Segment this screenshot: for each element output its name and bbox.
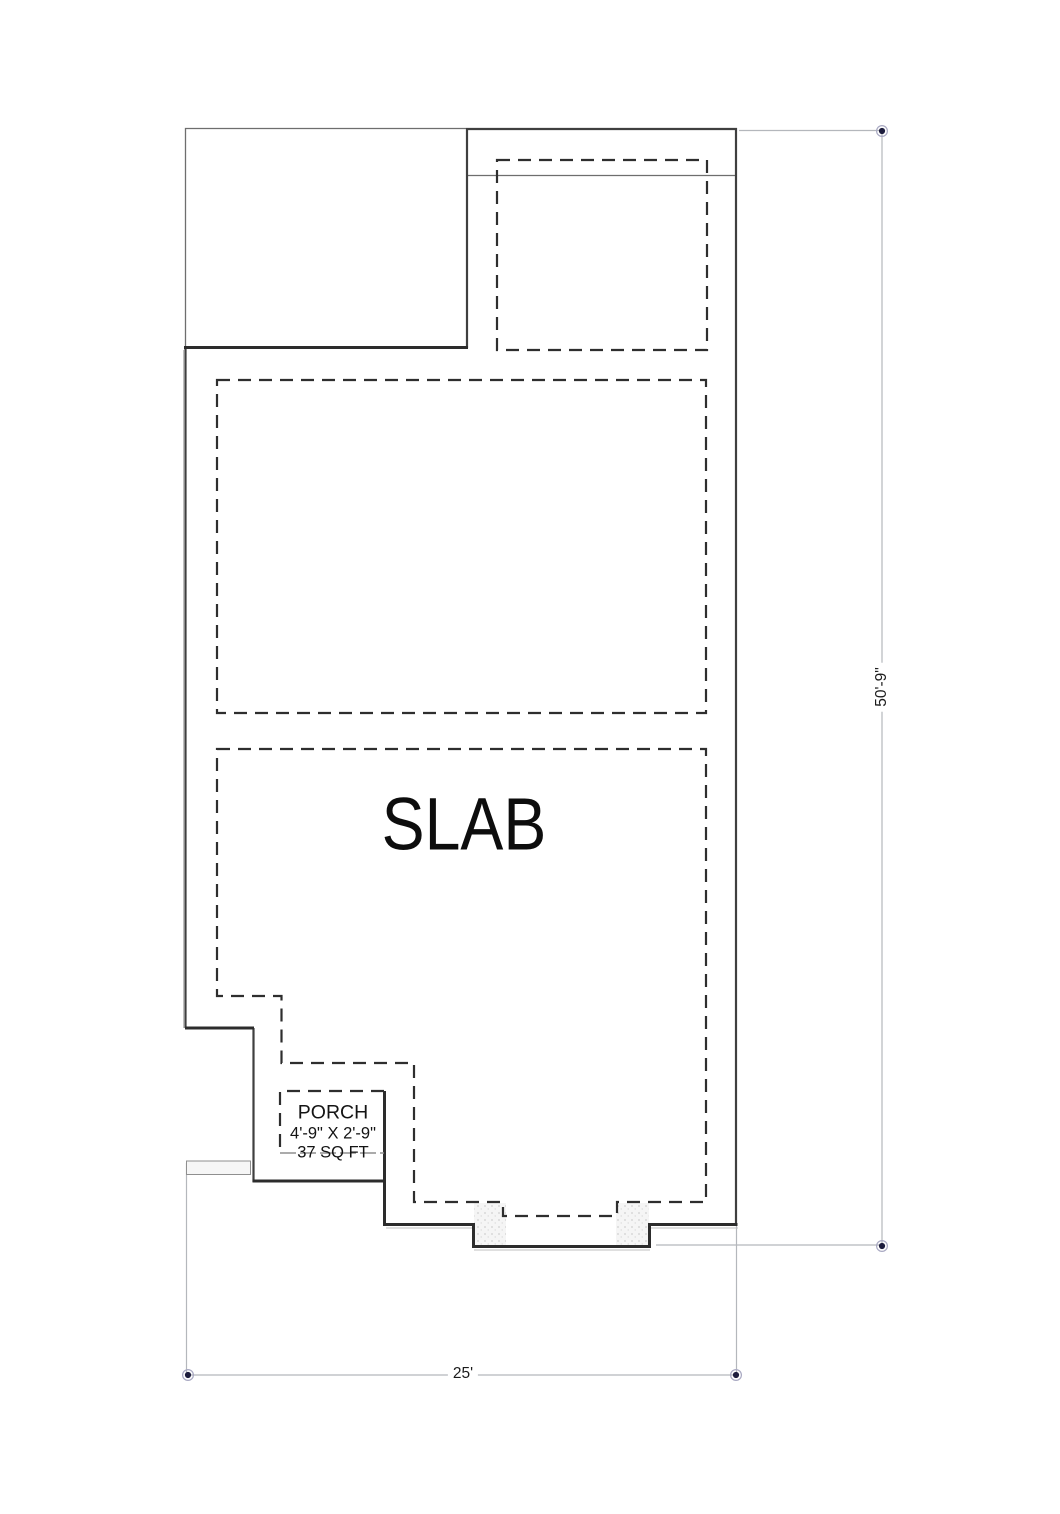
porch-size-label: 4'-9" X 2'-9"	[290, 1125, 376, 1144]
floor-plan-page: SLAB PORCH 4'-9" X 2'-9" 37 SQ FT 50'-9"…	[0, 0, 1060, 1514]
dimension-height-label: 50'-9"	[872, 662, 892, 711]
dimension-markers	[183, 126, 888, 1381]
dimension-width-label: 25'	[448, 1364, 478, 1384]
stoop-outline	[187, 1161, 251, 1175]
floor-plan-drawing	[0, 0, 1060, 1514]
concrete-step-pads	[474, 1203, 649, 1246]
slab-dashed-outlines	[217, 160, 707, 1216]
walls-medium	[186, 128, 738, 1225]
walls-thin	[186, 129, 737, 348]
dimension-lines	[187, 131, 883, 1376]
slab-label: SLAB	[382, 782, 547, 867]
porch-label: PORCH	[298, 1102, 368, 1125]
porch-area-label: 37 SQ FT	[297, 1144, 369, 1163]
